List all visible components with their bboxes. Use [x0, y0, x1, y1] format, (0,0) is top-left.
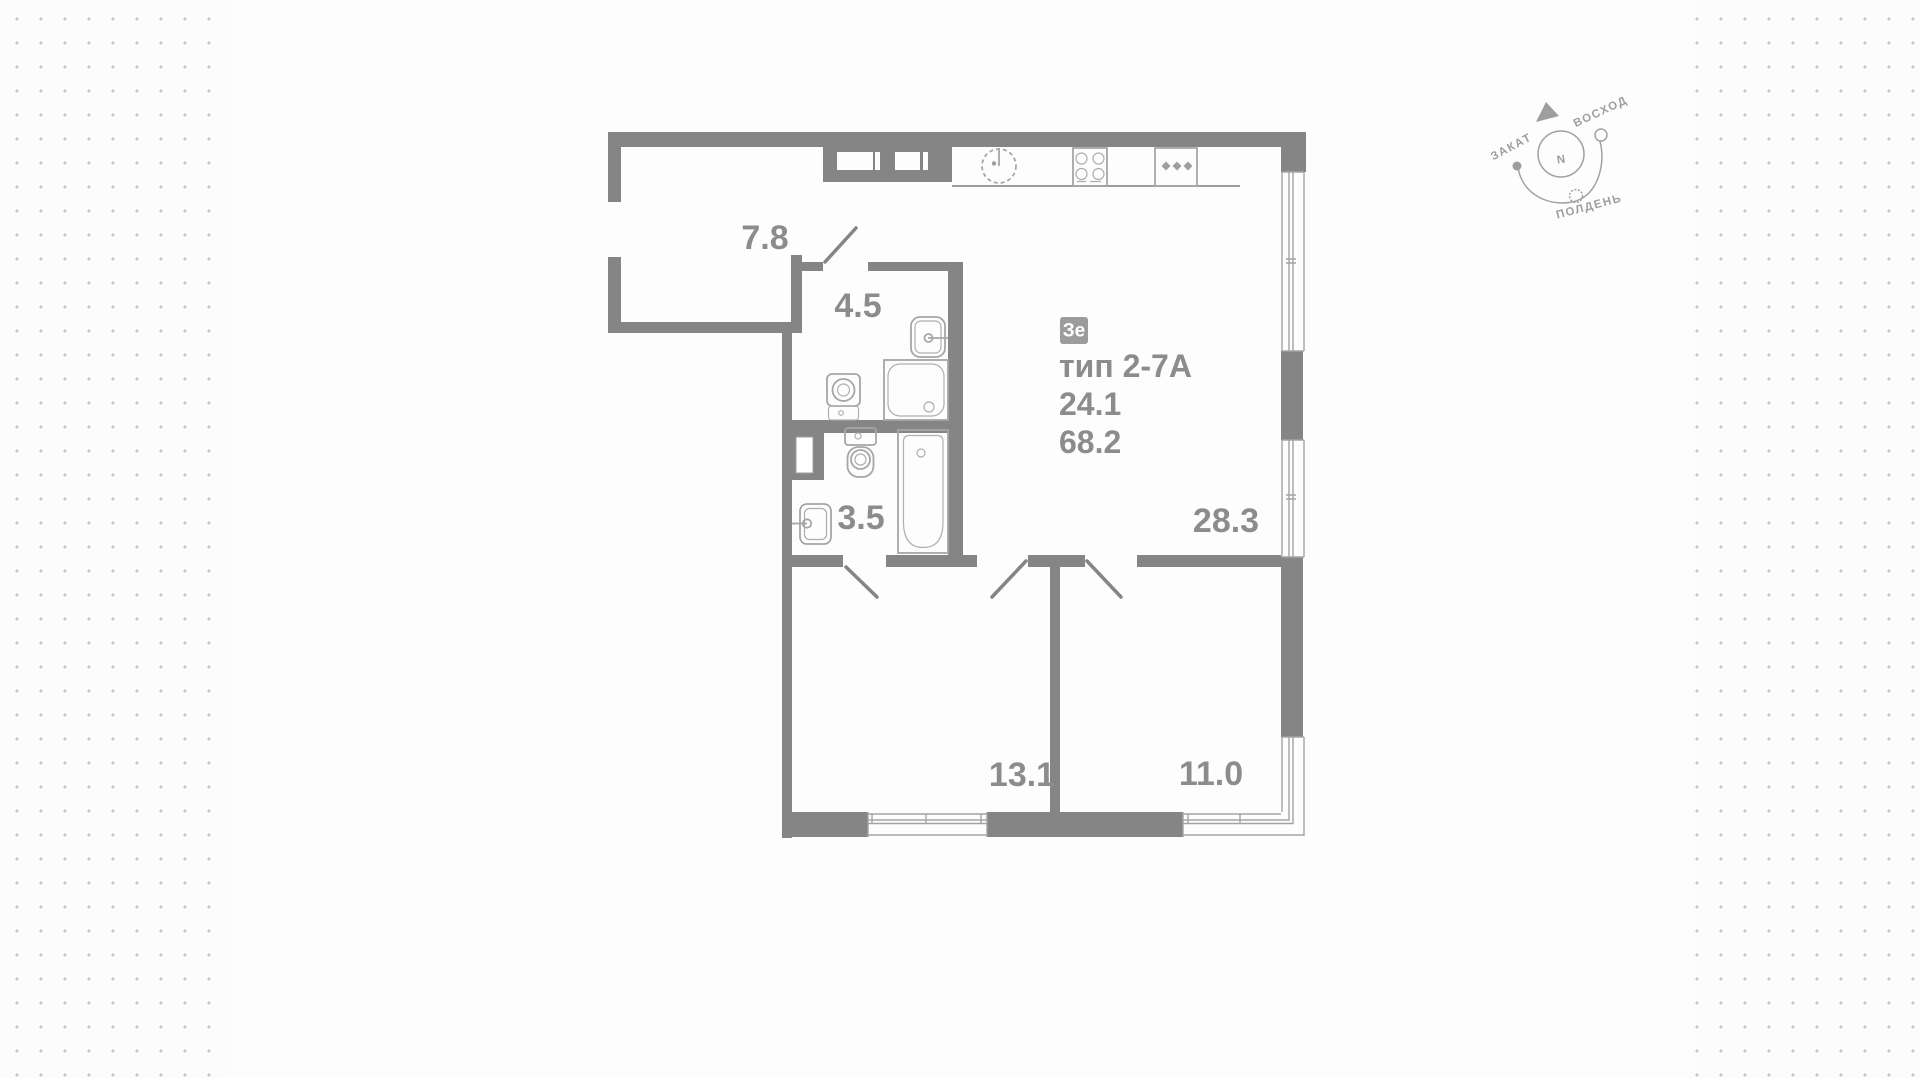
euro-badge-label: Зе [1063, 321, 1085, 342]
window-right-2 [1282, 440, 1304, 557]
door-bathroom-tub [846, 567, 877, 597]
door-bathroom-shower [825, 228, 856, 262]
room-label-hallway: 7.8 [741, 219, 788, 257]
total-area-value: 68.2 [1059, 424, 1121, 460]
window-right-1 [1282, 172, 1304, 351]
sunset-dot-icon [1513, 162, 1522, 171]
window-bottom-left [868, 812, 987, 837]
door-bedroom-right [1087, 561, 1121, 597]
room-label-bedroom-left: 13.1 [989, 756, 1055, 794]
door-bedroom-left [992, 561, 1026, 597]
sunset-label: ЗАКАТ [1489, 132, 1534, 164]
kitchen [952, 148, 1240, 186]
page: { "background": { "dot_color": "#c7c7c7"… [0, 0, 1920, 1078]
compass: N ЗАКАТ ВОСХОД ПОЛДЕНЬ [1489, 95, 1630, 222]
kitchen-sink-icon [982, 148, 1016, 183]
appliance-icon [1155, 148, 1197, 186]
sunrise-dot-icon [1595, 129, 1607, 141]
north-arrow-icon [1536, 102, 1559, 122]
walls [608, 132, 1306, 838]
compass-north-letter: N [1556, 153, 1567, 166]
room-label-bathroom-tub: 3.5 [837, 499, 884, 537]
bathtub-icon [898, 430, 948, 553]
noon-label: ПОЛДЕНЬ [1555, 193, 1624, 222]
sunrise-label: ВОСХОД [1572, 95, 1630, 130]
room-label-bedroom-right: 11.0 [1179, 755, 1243, 793]
living-area-value: 24.1 [1059, 386, 1121, 422]
shower-icon [884, 360, 948, 420]
washbasin-icon [911, 317, 948, 357]
apartment-type-label: тип 2-7А [1059, 348, 1192, 384]
washing-machine-icon [827, 374, 860, 420]
shaft-niche [796, 437, 813, 473]
sun-path-arc [1518, 141, 1602, 203]
room-label-kitchen-living: 28.3 [1193, 502, 1259, 540]
toilet-icon [845, 428, 876, 477]
room-label-bathroom-shower: 4.5 [834, 287, 881, 325]
room-labels: 7.8 4.5 3.5 28.3 13.1 11.0 [741, 219, 1259, 794]
stove-icon [1073, 148, 1107, 186]
small-basin-icon [792, 504, 831, 544]
apartment-info: Зе тип 2-7А 24.1 68.2 [1059, 317, 1192, 460]
floor-plan-svg: 7.8 4.5 3.5 28.3 13.1 11.0 Зе тип 2-7А 2… [0, 0, 1920, 1078]
